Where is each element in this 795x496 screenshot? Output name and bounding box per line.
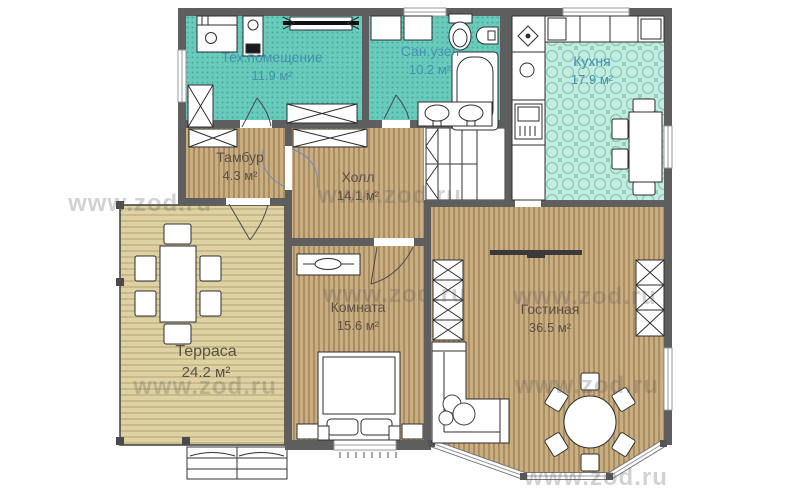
fridge	[638, 16, 664, 42]
radiator	[283, 17, 359, 30]
floor-plan-drawing	[0, 0, 795, 496]
wardrobe	[189, 129, 237, 147]
staircase	[426, 128, 505, 200]
window-living-right	[664, 348, 672, 410]
terrace-deck	[120, 205, 285, 445]
wardrobe	[293, 129, 367, 147]
vent-grille	[340, 452, 396, 458]
nightstand	[402, 424, 423, 439]
wardrobe	[433, 260, 463, 340]
kitchen-counter-top	[545, 16, 638, 42]
wardrobe	[287, 104, 357, 123]
wall-sink	[477, 27, 499, 44]
dresser-with-mirror	[297, 254, 360, 275]
water-heater	[243, 16, 263, 56]
window-bedroom-bottom	[334, 440, 396, 450]
cabinet	[404, 16, 432, 40]
round-dining-table	[564, 396, 616, 448]
bed	[318, 352, 400, 440]
wardrobe	[188, 85, 213, 127]
terrace-table	[160, 246, 196, 322]
window-kitchen-top	[563, 8, 629, 16]
stove	[515, 104, 542, 139]
cabinet	[371, 16, 401, 40]
toilet	[449, 14, 472, 50]
floor-plan-page: www.zod.ru www.zod.ru www.zod.ru www.zod…	[0, 0, 795, 496]
double-vanity-sink	[418, 102, 492, 126]
washing-machine	[197, 16, 237, 52]
window-kitchen-right	[664, 126, 672, 168]
terrace	[116, 201, 287, 479]
nightstand	[297, 424, 318, 439]
entry-steps	[187, 447, 287, 479]
wardrobe	[636, 260, 664, 336]
hob	[520, 63, 534, 77]
kitchen-table	[629, 112, 662, 182]
window-bathroom-top	[404, 8, 446, 16]
window-utility-left	[178, 50, 186, 102]
